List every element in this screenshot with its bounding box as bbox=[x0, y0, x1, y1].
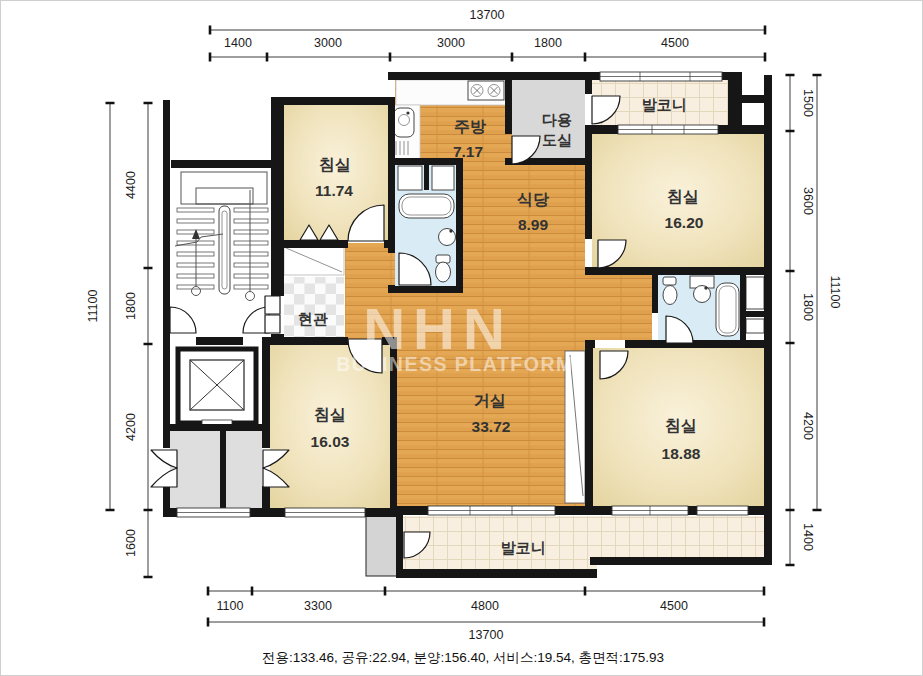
window-bedroom-bottom-right-2 bbox=[697, 506, 748, 515]
stair-stringer bbox=[219, 206, 230, 294]
dimension-bottom: 1100 3300 4800 4500 13700 bbox=[208, 587, 764, 643]
dim-right-seg-3: 4200 bbox=[801, 412, 815, 440]
dim-bottom-seg-2: 4800 bbox=[471, 599, 499, 613]
bedroom-bottom-left-area: 16.03 bbox=[311, 433, 350, 450]
bath-closet-top bbox=[746, 277, 764, 309]
dim-left-seg-0: 4400 bbox=[124, 171, 138, 199]
floor-plan-canvas: NHN BUSINESS PLATFORM 침실 11.74 주방 7.17 다… bbox=[0, 0, 923, 676]
dim-bottom-total: 13700 bbox=[469, 628, 504, 642]
dimension-left: 11100 4400 1800 4200 1600 bbox=[86, 103, 153, 577]
bedroom-top-right-area: 16.20 bbox=[665, 214, 704, 231]
dim-right-total: 11100 bbox=[828, 276, 842, 309]
gas-range-icon bbox=[468, 81, 504, 100]
staircase bbox=[175, 172, 268, 301]
sink-icon bbox=[439, 229, 456, 246]
window-bedroom-bottom-left bbox=[285, 508, 365, 517]
toilet-icon bbox=[436, 255, 451, 282]
entrance-floor bbox=[284, 277, 344, 337]
bathtub-icon bbox=[716, 283, 739, 336]
elevator bbox=[178, 349, 256, 427]
dim-right-seg-2: 1800 bbox=[801, 293, 815, 321]
entry-door-panels bbox=[265, 296, 280, 333]
dim-top-seg-2: 3000 bbox=[437, 36, 465, 50]
window-balcony-top bbox=[600, 72, 722, 81]
dim-right-seg-1: 3600 bbox=[801, 187, 815, 215]
dining-label: 식당 bbox=[517, 191, 549, 208]
dim-top-seg-4: 4500 bbox=[661, 36, 689, 50]
dim-bottom-seg-1: 3300 bbox=[304, 599, 332, 613]
dim-left-seg-3: 1600 bbox=[124, 529, 138, 557]
shoe-closet bbox=[284, 245, 344, 275]
living-label: 거실 bbox=[474, 392, 506, 409]
utility-label-line2: 도실 bbox=[542, 131, 572, 148]
balcony-bottom-label: 발코니 bbox=[501, 539, 546, 556]
bedroom-bottom-left-label: 침실 bbox=[314, 406, 346, 423]
dim-top-seg-3: 1800 bbox=[534, 36, 562, 50]
bedroom-top-right-label: 침실 bbox=[667, 188, 699, 205]
kitchen-area: 7.17 bbox=[453, 143, 483, 160]
dim-bottom-seg-3: 4500 bbox=[660, 599, 688, 613]
kitchen-label: 주방 bbox=[454, 118, 486, 135]
watermark-subtitle: BUSINESS PLATFORM bbox=[336, 353, 573, 375]
bedroom-bottom-right-area: 18.88 bbox=[662, 445, 701, 462]
bathtub-icon bbox=[399, 194, 454, 218]
balcony-wall-block bbox=[366, 514, 400, 576]
watermark-logo: NHN bbox=[363, 296, 513, 361]
window-bedroom-top-right bbox=[618, 125, 718, 134]
dim-left-seg-2: 4200 bbox=[124, 413, 138, 441]
dim-top-total: 13700 bbox=[470, 8, 505, 22]
bath-closet-bottom bbox=[746, 319, 764, 333]
balcony-top-label: 발코니 bbox=[642, 96, 687, 113]
window-living-bottom bbox=[428, 506, 555, 515]
door-stair-left bbox=[170, 307, 196, 333]
living-area: 33.72 bbox=[472, 418, 511, 435]
entrance-label: 현관 bbox=[298, 310, 328, 327]
dim-right-seg-4: 1400 bbox=[801, 523, 815, 551]
dim-bottom-seg-0: 1100 bbox=[217, 599, 244, 613]
closet-right-floor bbox=[226, 431, 262, 508]
bedroom-bottom-right-label: 침실 bbox=[665, 417, 697, 434]
dim-left-total: 11100 bbox=[86, 290, 100, 323]
bedroom-top-left-label: 침실 bbox=[319, 156, 351, 173]
dim-left-seg-1: 1800 bbox=[124, 292, 138, 320]
area-summary: 전용:133.46, 공유:22.94, 분양:156.40, 서비스:19.5… bbox=[262, 650, 664, 665]
dining-area: 8.99 bbox=[518, 216, 549, 233]
dimension-right: 1500 3600 1800 4200 1400 11100 bbox=[786, 75, 843, 565]
sink-icon bbox=[694, 286, 711, 303]
window-closet-zone bbox=[177, 508, 250, 517]
utility-label-line1: 다용 bbox=[542, 111, 572, 128]
dim-top-seg-0: 1400 bbox=[224, 36, 252, 50]
window-bedroom-bottom-right-1 bbox=[612, 506, 688, 515]
floor-plan-page: NHN BUSINESS PLATFORM 침실 11.74 주방 7.17 다… bbox=[0, 0, 923, 676]
bedroom-top-left-area: 11.74 bbox=[315, 182, 353, 199]
toilet-icon bbox=[663, 277, 677, 305]
dim-top-seg-1: 3000 bbox=[314, 36, 342, 50]
dim-right-seg-0: 1500 bbox=[801, 89, 815, 117]
dimension-top: 13700 1400 3000 3000 1800 4500 bbox=[210, 8, 765, 62]
corridor-floor bbox=[585, 275, 652, 340]
